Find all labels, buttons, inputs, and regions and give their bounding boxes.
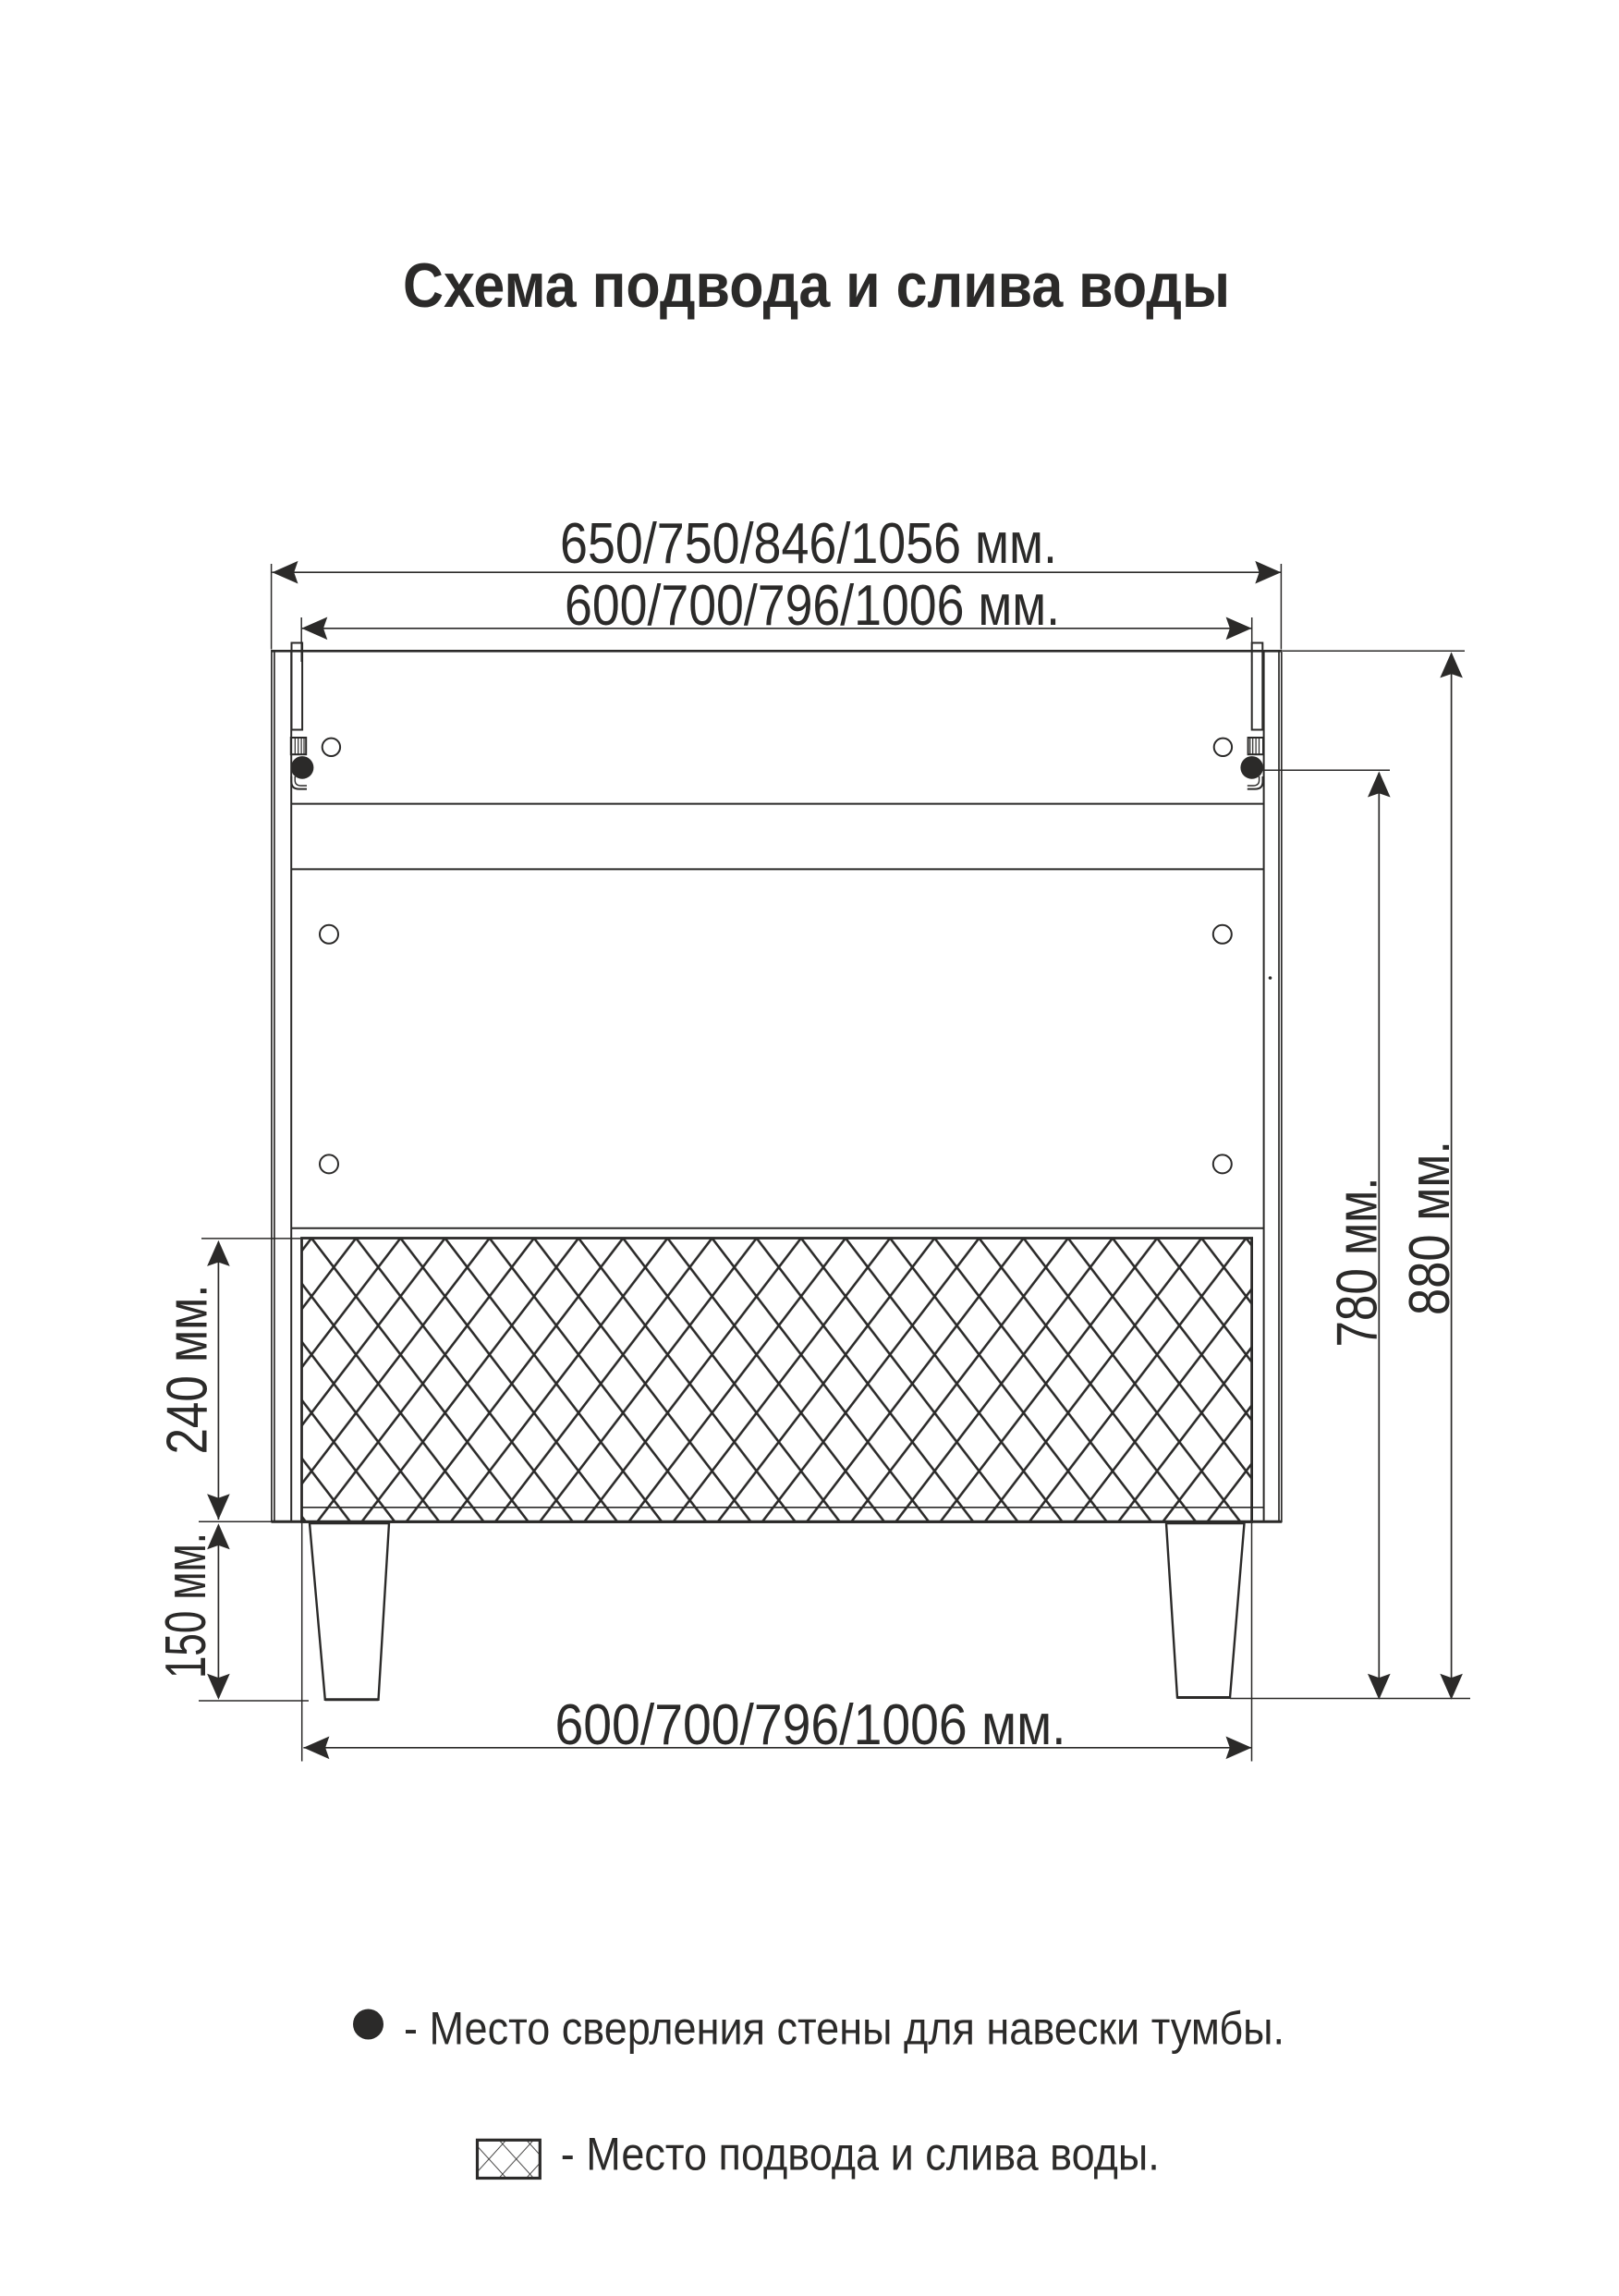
svg-text:650/750/846/1056 мм.: 650/750/846/1056 мм.: [560, 512, 1057, 576]
svg-text:240 мм.: 240 мм.: [155, 1285, 219, 1455]
svg-text:- Место сверления стены для на: - Место сверления стены для навески тумб…: [404, 2002, 1284, 2055]
svg-text:880 мм.: 880 мм.: [1398, 1141, 1462, 1315]
svg-text:780 мм.: 780 мм.: [1326, 1178, 1390, 1348]
svg-text:150 мм.: 150 мм.: [154, 1533, 218, 1679]
svg-text:Схема подвода и слива воды: Схема подвода и слива воды: [403, 250, 1230, 321]
svg-text:- Место подвода и слива воды.: - Место подвода и слива воды.: [561, 2128, 1160, 2180]
